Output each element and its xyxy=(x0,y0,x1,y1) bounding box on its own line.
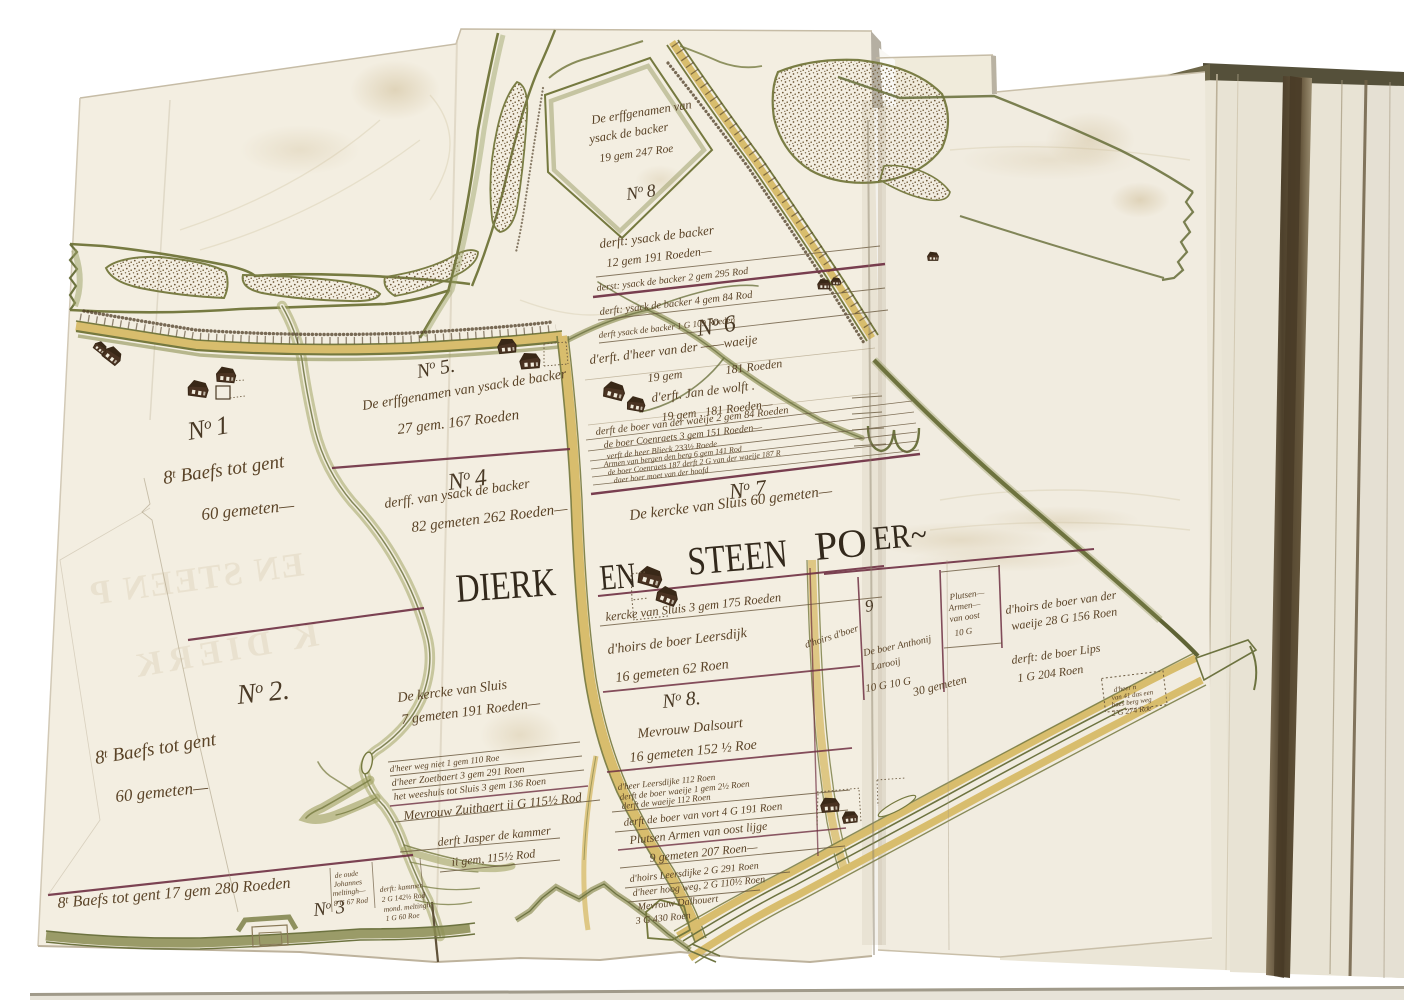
svg-text:PO: PO xyxy=(813,520,869,569)
svg-text:STEEN: STEEN xyxy=(686,530,790,584)
svg-text:EN: EN xyxy=(598,555,637,598)
svg-text:ER~: ER~ xyxy=(871,516,928,558)
svg-text:DIERK: DIERK xyxy=(454,559,557,611)
